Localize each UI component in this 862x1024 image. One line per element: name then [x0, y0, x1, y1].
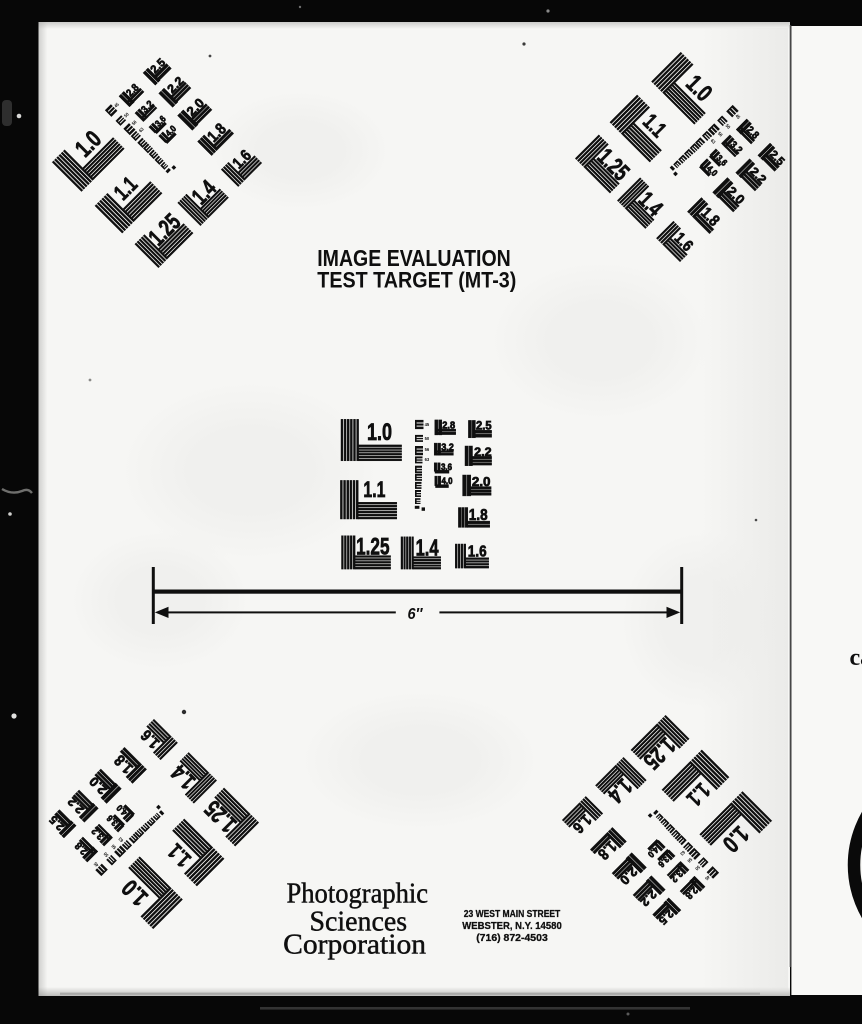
svg-text:TEST TARGET (MT-3): TEST TARGET (MT-3)	[317, 268, 516, 293]
svg-text:Corporation: Corporation	[283, 930, 426, 961]
svg-text:ca: ca	[850, 645, 862, 671]
svg-text:6″: 6″	[408, 606, 424, 623]
svg-text:Photographic: Photographic	[287, 879, 429, 910]
svg-text:23 WEST MAIN STREET: 23 WEST MAIN STREET	[464, 908, 561, 920]
svg-text:WEBSTER, N.Y. 14580: WEBSTER, N.Y. 14580	[462, 920, 562, 932]
svg-text:(716) 872-4503: (716) 872-4503	[476, 932, 548, 944]
